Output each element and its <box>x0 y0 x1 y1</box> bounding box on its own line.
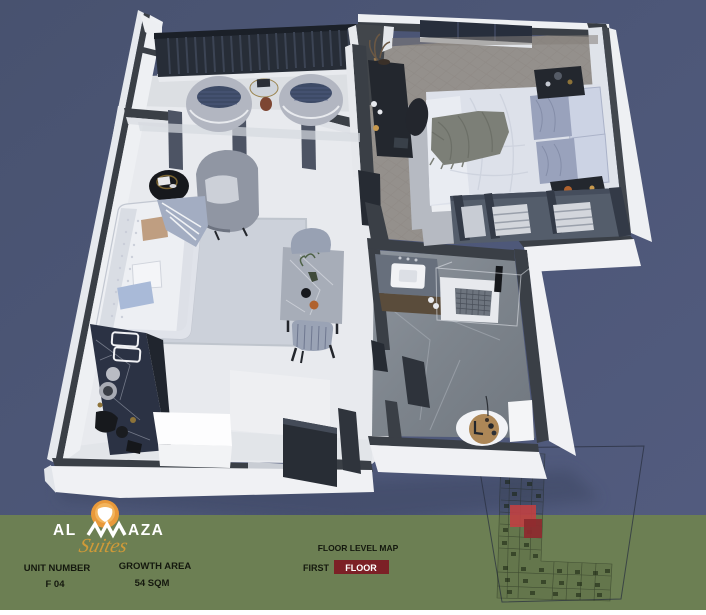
svg-text:FLOOR: FLOOR <box>345 563 377 573</box>
svg-text:GROWTH AREA: GROWTH AREA <box>119 561 192 572</box>
svg-text:54 SQM: 54 SQM <box>135 578 170 589</box>
svg-text:AL: AL <box>53 522 77 539</box>
svg-text:AZA: AZA <box>128 522 164 539</box>
svg-text:F 04: F 04 <box>45 579 65 590</box>
svg-text:UNIT NUMBER: UNIT NUMBER <box>24 563 91 574</box>
svg-text:FIRST: FIRST <box>303 563 330 573</box>
svg-text:FLOOR LEVEL MAP: FLOOR LEVEL MAP <box>318 543 399 553</box>
svg-text:Suites: Suites <box>77 535 130 557</box>
